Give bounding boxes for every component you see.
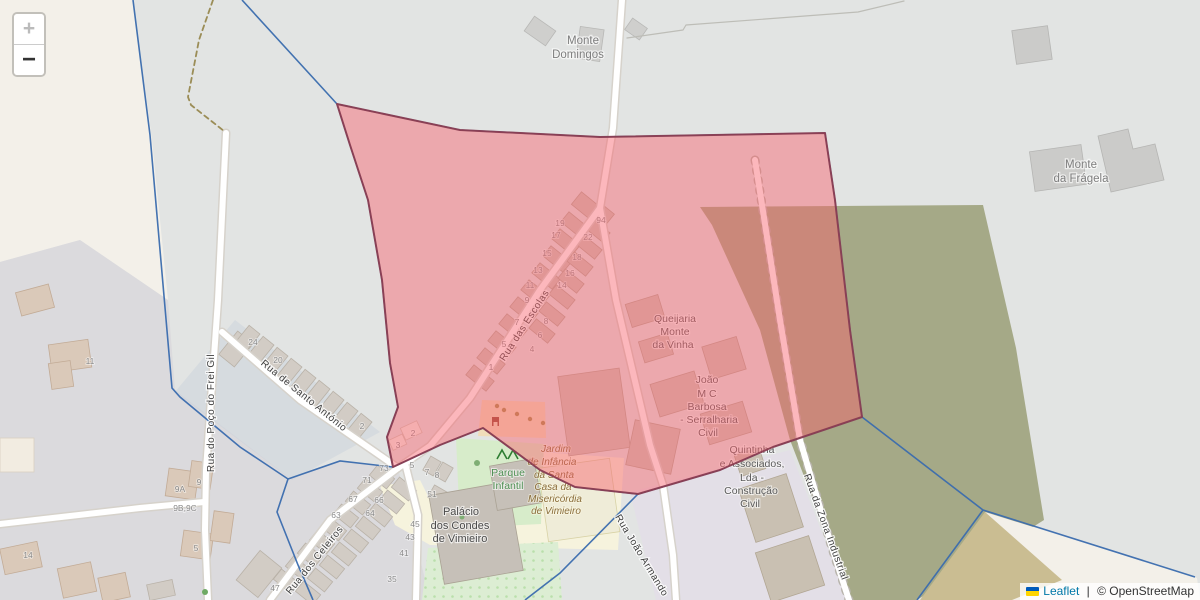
street-label-frei-gil: Rua do Poço do Frei Gil — [206, 354, 217, 472]
leaflet-map[interactable]: Monte Domingos Monte da Frágela Queijari… — [0, 0, 1200, 600]
tree-icon — [474, 460, 480, 466]
tree-icon — [202, 589, 208, 595]
attribution-separator: | — [1083, 584, 1093, 598]
svg-text:Monte: Monte — [567, 35, 599, 47]
house-number: 45 — [410, 519, 420, 529]
svg-text:Misericórdia: Misericórdia — [528, 494, 582, 505]
house-number: 35 — [387, 574, 397, 584]
svg-text:Parque: Parque — [491, 467, 525, 479]
leaflet-link[interactable]: Leaflet — [1043, 584, 1079, 598]
house-number: 67 — [348, 494, 358, 504]
house-number: 9 — [197, 477, 202, 487]
house-number: 66 — [374, 495, 384, 505]
house-number: 8 — [435, 470, 440, 480]
zoom-in-button[interactable]: + — [14, 14, 44, 45]
svg-text:de Vimieiro: de Vimieiro — [531, 506, 581, 517]
house-number: 73 — [379, 463, 389, 473]
svg-text:Domingos: Domingos — [552, 49, 604, 61]
svg-text:Infantil: Infantil — [493, 480, 524, 492]
house-number: 43 — [405, 532, 415, 542]
svg-text:dos Condes: dos Condes — [431, 520, 490, 532]
house-number: 2 — [360, 421, 365, 431]
osm-attribution: © OpenStreetMap — [1097, 584, 1194, 598]
svg-text:Lda -: Lda - — [740, 472, 764, 484]
zoom-out-button[interactable]: − — [14, 45, 44, 75]
map-tiles: Monte Domingos Monte da Frágela Queijari… — [0, 0, 1200, 600]
house-number: 24 — [248, 337, 258, 347]
red-overlay-polygon[interactable] — [337, 104, 862, 494]
zoom-control: + − — [12, 12, 46, 77]
svg-text:Palácio: Palácio — [443, 506, 479, 518]
house-number: 71 — [362, 475, 372, 485]
svg-text:Civil: Civil — [740, 498, 760, 510]
house-number: 63 — [331, 510, 341, 520]
house-number: 20 — [273, 355, 283, 365]
label-parque-infantil: Parque Infantil — [491, 467, 525, 492]
house-number: 41 — [399, 548, 409, 558]
svg-text:de Vimieiro: de Vimieiro — [433, 533, 488, 545]
house-number: 64 — [365, 508, 375, 518]
house-number: 14 — [23, 550, 33, 560]
house-number: 7 — [425, 467, 430, 477]
house-number: 9A — [175, 484, 186, 494]
house-number: 5 — [194, 543, 199, 553]
attribution-bar: Leaflet | © OpenStreetMap — [1020, 583, 1200, 600]
svg-text:Monte: Monte — [1065, 159, 1097, 171]
svg-text:Construção: Construção — [724, 485, 778, 497]
house-number: 9B,9C — [173, 503, 197, 513]
house-number: 47 — [270, 583, 280, 593]
svg-text:da Frágela: da Frágela — [1054, 173, 1110, 185]
house-number: 11 — [86, 356, 95, 366]
house-number: 51 — [427, 489, 437, 499]
ukraine-flag-icon — [1026, 587, 1039, 596]
house-number: 5 — [410, 460, 415, 470]
